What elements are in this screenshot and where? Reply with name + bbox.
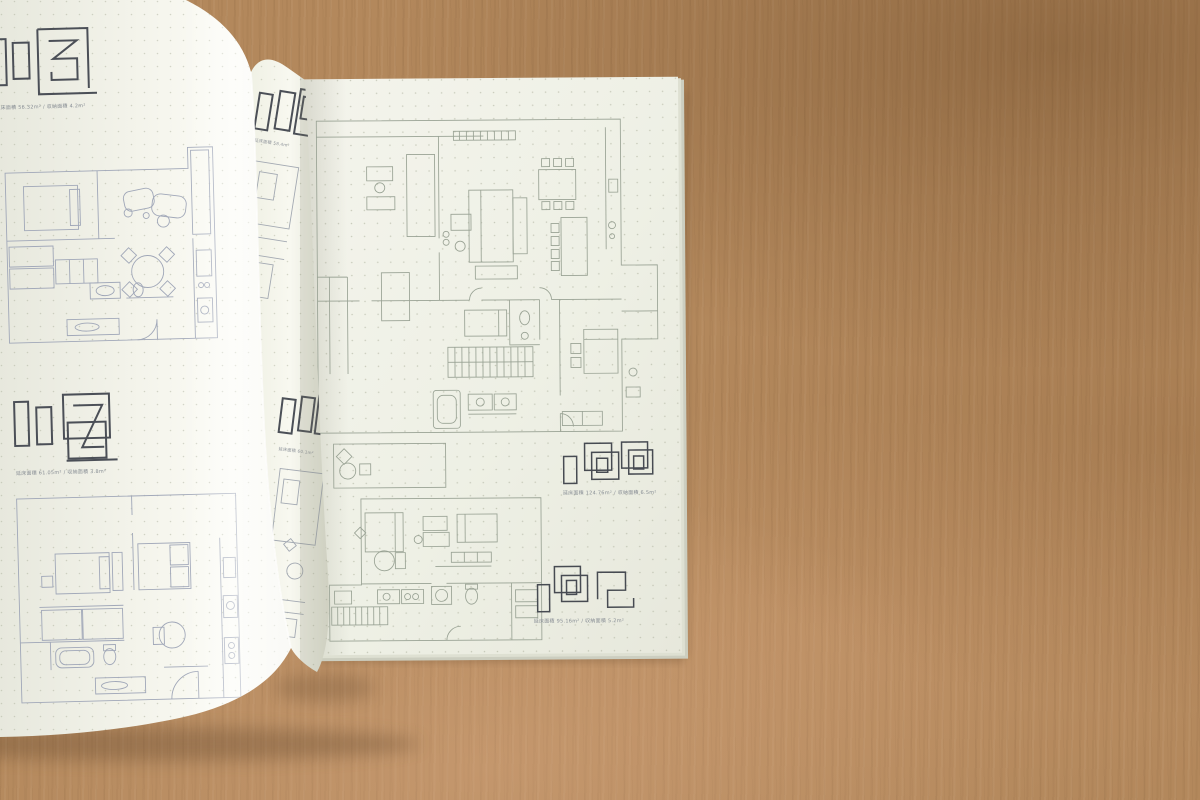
sofa-seat-line <box>481 190 482 262</box>
open-book-photo: 延床面積 124.76m² / 収納面積 6.5m² 延床面積 95.16m² … <box>0 0 1200 800</box>
unit-102-caption: 延床面積 95.16m² / 収納面積 5.2m² <box>534 617 624 625</box>
wood-table-background: 延床面積 124.76m² / 収納面積 6.5m² 延床面積 95.16m² … <box>0 0 1200 800</box>
right-page: 延床面積 124.76m² / 収納面積 6.5m² 延床面積 95.16m² … <box>304 77 688 662</box>
unit-100-caption: 延床面積 124.76m² / 収納面積 6.5m² <box>563 489 657 497</box>
stair-mid-line <box>448 362 533 363</box>
dot-grid-right <box>304 77 682 656</box>
spine-shadow <box>275 674 375 702</box>
